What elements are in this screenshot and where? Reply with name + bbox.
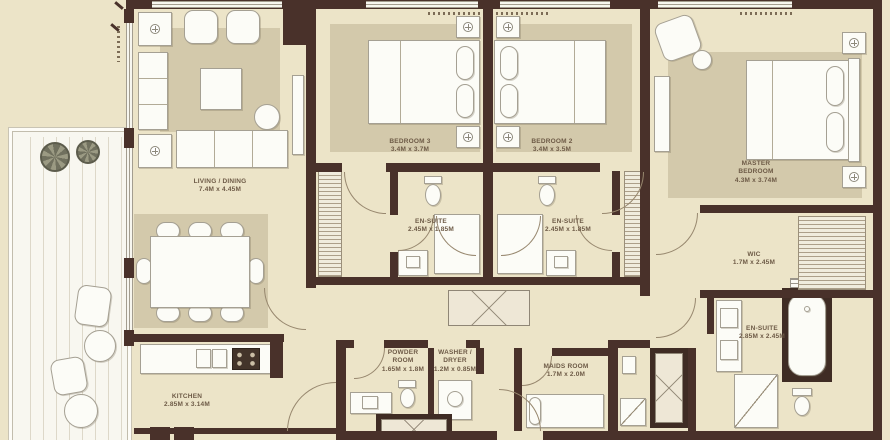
door-arc — [656, 298, 696, 338]
lamp-icon — [463, 132, 473, 142]
window — [658, 1, 792, 8]
balcony-chair — [49, 355, 89, 396]
balcony-chair — [73, 284, 112, 328]
lamp-icon — [849, 172, 859, 182]
balcony-chair — [64, 394, 98, 428]
armchair — [184, 10, 218, 44]
wall — [124, 330, 134, 346]
room-name: LIVING / DINING — [176, 178, 264, 186]
curtain-squiggle — [428, 12, 480, 15]
room-label-living-dining: LIVING / DINING 7.4M x 4.45M — [176, 178, 264, 195]
sink-basin — [362, 396, 378, 409]
room-name: WIC — [714, 251, 794, 259]
wall-break-symbol — [114, 1, 124, 10]
room-label-wic: WIC 1.7M x 2.45M — [714, 251, 794, 268]
room-label-washer-dryer: WASHER / DRYER 1.2M x 0.85M — [432, 349, 478, 374]
wall — [283, 0, 316, 45]
floor-plan: LIVING / DINING 7.4M x 4.45M BEDROOM 3 3… — [0, 0, 890, 440]
room-dimensions: 4.3M x 3.74M — [727, 177, 785, 185]
washer-drum — [447, 391, 463, 407]
lamp-icon — [150, 146, 160, 156]
tv-console — [292, 75, 304, 155]
side-table-round — [692, 50, 712, 70]
wall — [124, 9, 134, 23]
coffee-table — [200, 68, 242, 110]
plant-icon — [76, 140, 100, 164]
wall — [386, 163, 600, 172]
wall — [552, 348, 608, 356]
toilet-bowl — [539, 184, 555, 206]
bed-fold-line — [772, 61, 773, 159]
sink-basin — [622, 356, 636, 374]
room-name: BEDROOM 3 — [365, 138, 455, 146]
wall — [390, 171, 398, 215]
room-label-ensuite-bed3: EN-SUITE 2.45M x 1.85M — [396, 218, 466, 235]
balcony-chair — [84, 330, 116, 362]
door-arc — [287, 382, 336, 431]
pillow — [456, 46, 474, 80]
pillow — [500, 46, 518, 80]
wall — [640, 0, 650, 296]
door-arc — [264, 288, 306, 330]
room-dimensions: 2.45M x 1.85M — [396, 226, 466, 234]
wardrobe-hatch — [318, 171, 342, 277]
room-label-maids-room: MAIDS ROOM 1.7M x 2.0M — [524, 363, 608, 380]
sofa-cushion-line — [252, 131, 253, 167]
toilet-bowl — [400, 388, 415, 408]
toilet-bowl — [425, 184, 441, 206]
room-name: WASHER / DRYER — [432, 349, 478, 366]
bathtub-drain — [804, 306, 810, 312]
door-arc — [656, 213, 698, 255]
curtain-squiggle — [496, 12, 548, 15]
sofa — [138, 52, 168, 130]
window — [152, 1, 282, 8]
wall — [336, 340, 346, 431]
pillow — [826, 112, 844, 152]
window — [366, 1, 478, 8]
wall — [608, 340, 618, 431]
lamp-icon — [503, 22, 513, 32]
pillow — [826, 66, 844, 106]
wall — [700, 290, 873, 298]
curtain-squiggle — [740, 12, 794, 15]
room-dimensions: 1.2M x 0.85M — [432, 366, 478, 374]
sofa-cushion-line — [214, 131, 215, 167]
wall — [707, 298, 714, 334]
room-label-bedroom-3: BEDROOM 3 3.4M x 3.7M — [365, 138, 455, 155]
sofa-cushion-line — [139, 78, 167, 79]
toilet — [792, 388, 812, 396]
toilet-bowl — [794, 396, 810, 416]
wall — [700, 205, 873, 213]
wall — [270, 334, 283, 378]
side-table-round — [254, 104, 280, 130]
wall — [134, 334, 284, 342]
wall — [483, 0, 493, 285]
wall — [316, 163, 342, 172]
room-name: BEDROOM 2 — [507, 138, 597, 146]
room-name: KITCHEN — [150, 393, 224, 401]
room-dimensions: 2.45M x 1.85M — [533, 226, 603, 234]
wall — [466, 340, 480, 348]
toilet — [424, 176, 442, 184]
wall — [612, 252, 620, 277]
wall — [124, 258, 134, 278]
hall-closet — [448, 290, 530, 326]
room-label-kitchen: KITCHEN 2.85M x 3.14M — [150, 393, 224, 410]
cooktop — [232, 348, 260, 370]
dining-table — [150, 236, 250, 308]
room-name: POWDER ROOM — [380, 349, 426, 366]
toilet — [538, 176, 556, 184]
window — [126, 9, 133, 345]
room-dimensions: 2.85M x 3.14M — [150, 401, 224, 409]
pillow — [500, 84, 518, 118]
armchair — [226, 10, 260, 44]
room-name: EN-SUITE — [396, 218, 466, 226]
shower — [620, 398, 646, 426]
door-arc — [344, 172, 386, 214]
dining-chair — [248, 258, 264, 284]
window — [500, 1, 610, 8]
room-label-bedroom-2: BEDROOM 2 3.4M x 3.5M — [507, 138, 597, 155]
room-dimensions: 1.65M x 1.8M — [380, 366, 426, 374]
room-label-ensuite-bed2: EN-SUITE 2.45M x 1.85M — [533, 218, 603, 235]
room-label-powder-room: POWDER ROOM 1.65M x 1.8M — [380, 349, 426, 374]
room-dimensions: 1.7M x 2.45M — [714, 259, 794, 267]
dresser — [654, 76, 670, 152]
wall — [336, 431, 497, 440]
room-dimensions: 7.4M x 4.45M — [176, 186, 264, 194]
shower — [734, 374, 778, 428]
wall — [124, 128, 134, 148]
kitchen-sink — [196, 349, 211, 368]
cabinet — [150, 427, 170, 440]
room-label-master-ensuite: EN-SUITE 2.85M x 2.45M — [736, 325, 788, 342]
room-dimensions: 2.85M x 2.45M — [736, 333, 788, 341]
room-name: EN-SUITE — [736, 325, 788, 333]
wall — [543, 431, 882, 440]
wall — [384, 340, 428, 348]
room-name: MAIDS ROOM — [524, 363, 608, 371]
lamp-icon — [849, 38, 859, 48]
lamp-icon — [150, 24, 160, 34]
sink-basin — [720, 340, 738, 360]
sink-basin — [554, 256, 568, 268]
sofa — [176, 130, 288, 168]
room-dimensions: 3.4M x 3.5M — [507, 146, 597, 154]
bed-fold-line — [400, 41, 401, 123]
room-dimensions: 1.7M x 2.0M — [524, 371, 608, 379]
plant-icon — [40, 142, 70, 172]
sofa-cushion-line — [139, 104, 167, 105]
wic-wardrobe-hatch — [798, 216, 866, 290]
curtain-squiggle — [117, 26, 120, 62]
kitchen-sink — [212, 349, 227, 368]
room-label-master-bedroom: MASTER BEDROOM 4.3M x 3.74M — [727, 160, 785, 185]
lamp-icon — [463, 22, 473, 32]
bed-fold-line — [574, 41, 575, 123]
wall — [873, 0, 882, 440]
room-dimensions: 3.4M x 3.7M — [365, 146, 455, 154]
wall — [688, 348, 696, 431]
room-name: EN-SUITE — [533, 218, 603, 226]
wall — [390, 252, 398, 277]
wall — [316, 277, 650, 285]
toilet — [398, 380, 416, 388]
room-name: MASTER BEDROOM — [727, 160, 785, 177]
cabinet — [174, 427, 194, 440]
headboard — [848, 58, 860, 162]
pillow — [456, 84, 474, 118]
linen-closet — [655, 353, 683, 423]
sink-basin — [406, 256, 420, 268]
